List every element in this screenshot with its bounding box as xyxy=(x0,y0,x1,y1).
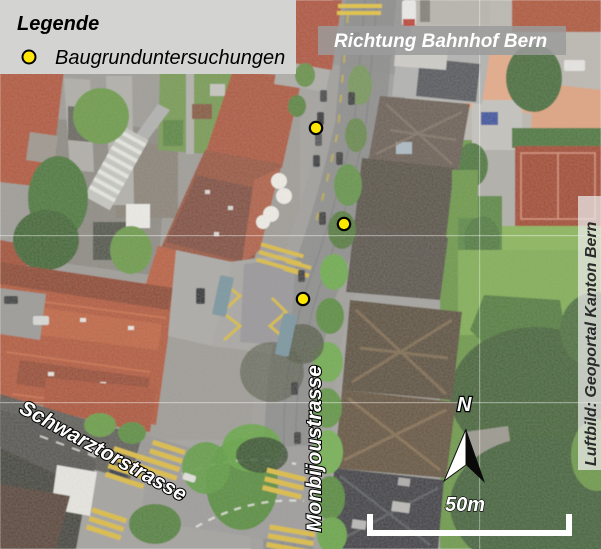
svg-text:Legende: Legende xyxy=(17,13,99,35)
svg-text:Monbijoustrasse: Monbijoustrasse xyxy=(303,365,326,532)
svg-text:Baugrunduntersuchungen: Baugrunduntersuchungen xyxy=(55,47,285,69)
svg-text:Luftbild: Geoportal Kanton Ber: Luftbild: Geoportal Kanton Bern xyxy=(583,221,600,466)
svg-text:Richtung Bahnhof Bern: Richtung Bahnhof Bern xyxy=(334,31,547,52)
svg-text:N: N xyxy=(457,394,472,416)
svg-text:50m: 50m xyxy=(445,494,485,516)
